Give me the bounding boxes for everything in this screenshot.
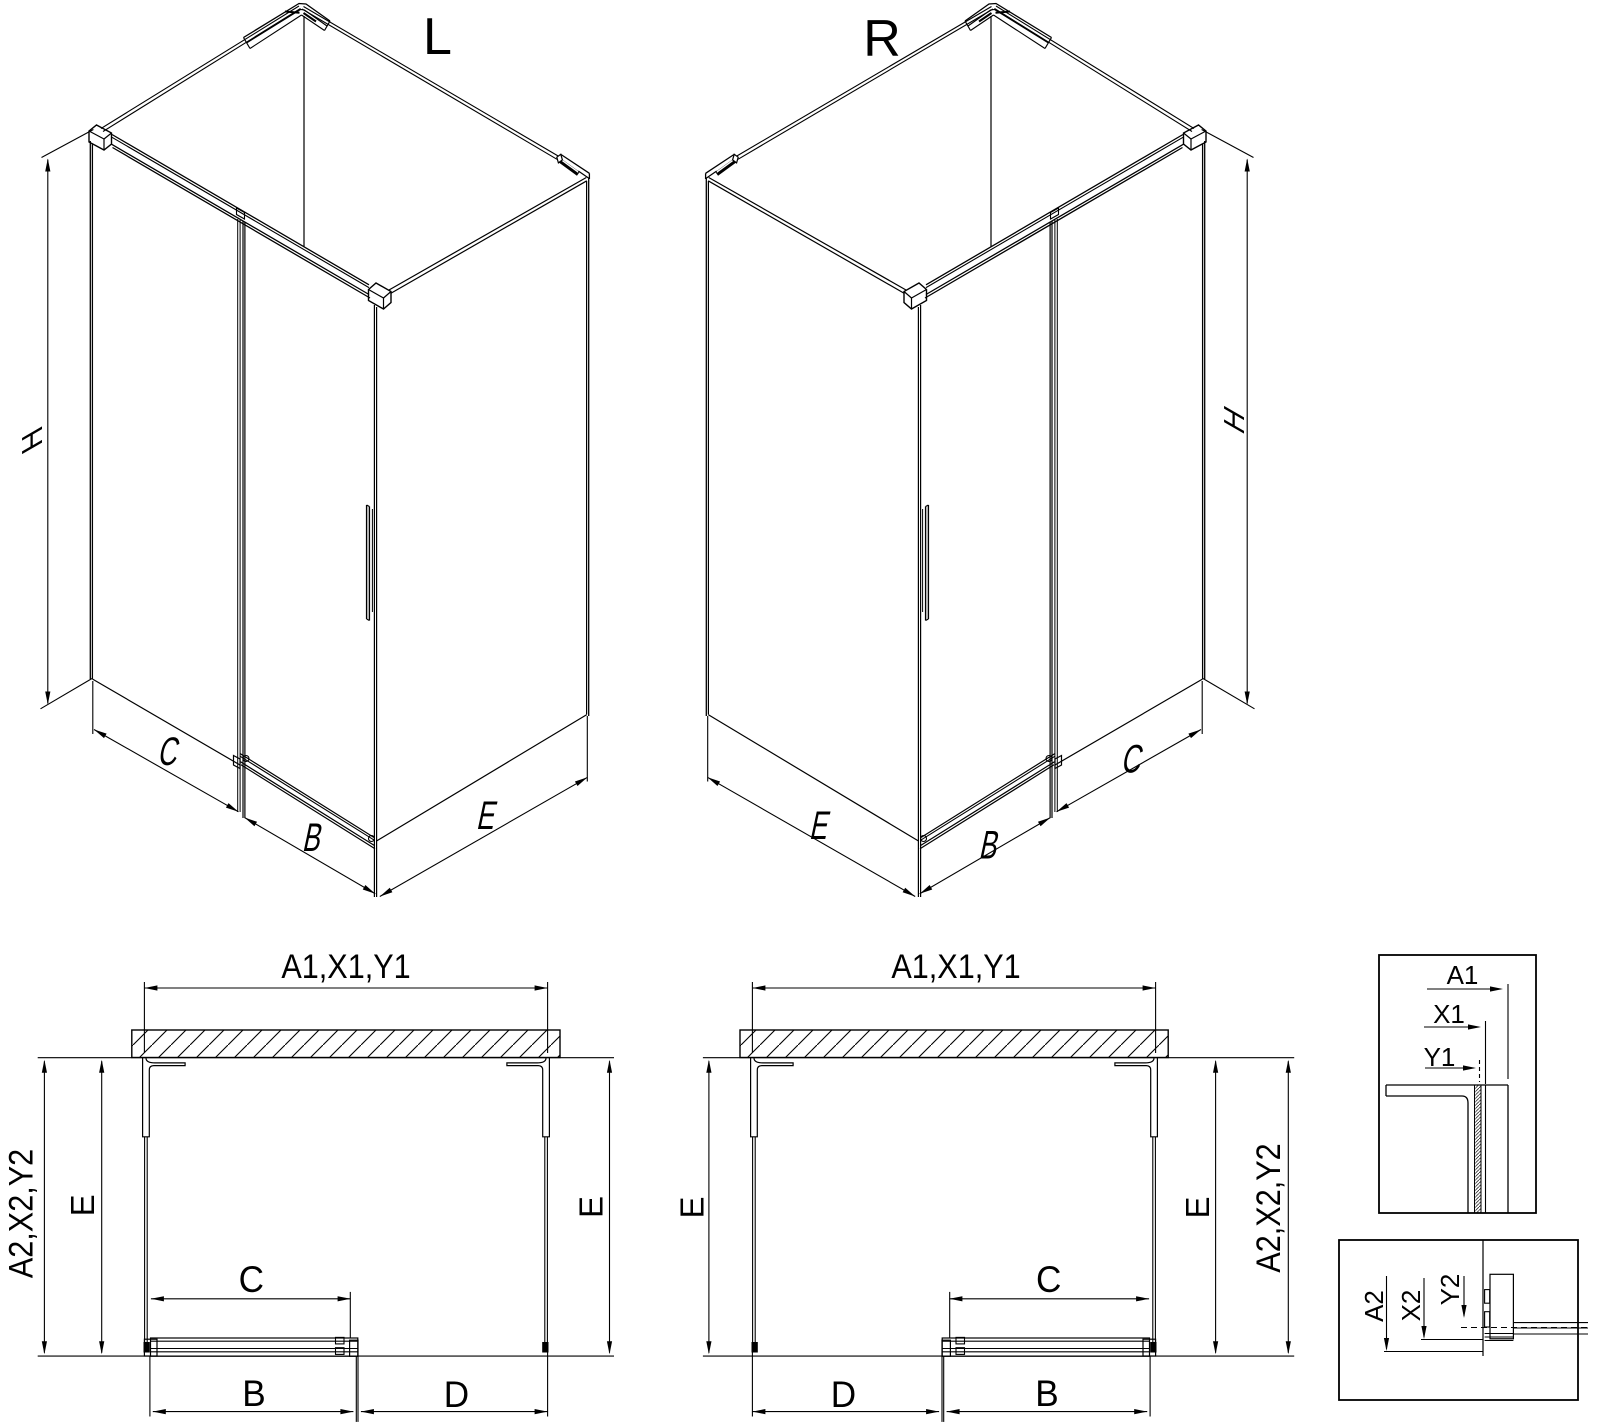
svg-text:C: C [239, 1258, 264, 1300]
svg-text:X2: X2 [1396, 1290, 1426, 1322]
svg-text:A1,X1,Y1: A1,X1,Y1 [281, 948, 410, 986]
svg-text:R: R [863, 10, 901, 68]
svg-text:A2,X2,Y2: A2,X2,Y2 [1250, 1143, 1288, 1272]
svg-text:D: D [831, 1373, 856, 1415]
svg-text:E: E [1179, 1196, 1216, 1218]
svg-text:C: C [1036, 1258, 1061, 1300]
svg-text:A1: A1 [1447, 960, 1479, 990]
svg-text:B: B [242, 1372, 265, 1414]
svg-text:A1,X1,Y1: A1,X1,Y1 [891, 948, 1020, 986]
svg-text:X1: X1 [1433, 999, 1465, 1029]
svg-text:L: L [423, 8, 452, 66]
svg-text:B: B [1035, 1372, 1058, 1414]
svg-text:E: E [573, 1196, 610, 1218]
svg-text:A2,X2,Y2: A2,X2,Y2 [2, 1149, 40, 1278]
svg-text:E: E [64, 1194, 101, 1216]
svg-text:Y2: Y2 [1435, 1274, 1465, 1306]
svg-text:A2: A2 [1359, 1290, 1389, 1322]
svg-text:D: D [444, 1373, 469, 1415]
svg-text:E: E [674, 1196, 711, 1218]
